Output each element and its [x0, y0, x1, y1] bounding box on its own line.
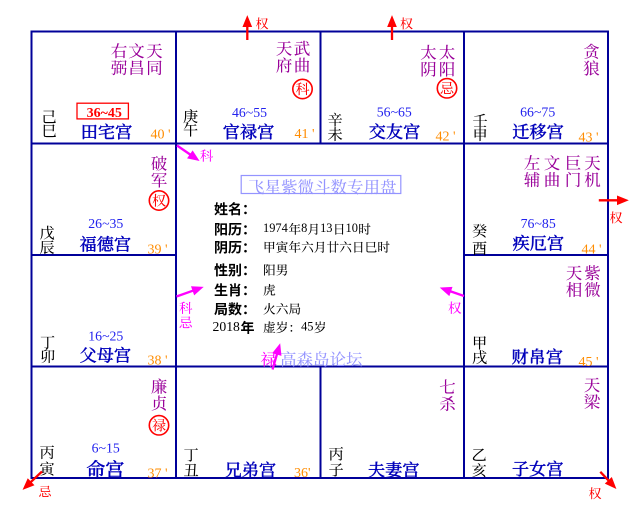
svg-text:43 ': 43 '	[578, 131, 598, 146]
svg-text:40 ': 40 '	[150, 128, 170, 143]
svg-text:56~65: 56~65	[377, 105, 412, 120]
svg-text:37 ': 37 '	[147, 467, 167, 482]
svg-text:10: 10	[346, 221, 358, 235]
svg-text:45: 45	[301, 319, 313, 333]
svg-text:42 ': 42 '	[435, 130, 455, 145]
svg-text:8: 8	[301, 221, 307, 235]
svg-text:2018: 2018	[213, 319, 241, 334]
svg-text:41 ': 41 '	[294, 127, 314, 142]
svg-text:16~25: 16~25	[88, 328, 123, 343]
svg-text:38 ': 38 '	[147, 354, 167, 369]
svg-text:26~35: 26~35	[88, 216, 123, 231]
svg-text:76~85: 76~85	[521, 216, 556, 231]
svg-text:36~45: 36~45	[87, 106, 122, 121]
svg-text:44 ': 44 '	[581, 243, 601, 258]
svg-text:1974: 1974	[263, 221, 288, 235]
svg-text:46~55: 46~55	[232, 105, 267, 120]
svg-text:66~75: 66~75	[520, 105, 555, 120]
svg-text:13: 13	[320, 221, 332, 235]
svg-text:6~15: 6~15	[92, 440, 120, 455]
svg-text:36': 36'	[294, 466, 311, 481]
svg-text:45 ': 45 '	[578, 355, 598, 370]
svg-text:39 ': 39 '	[147, 243, 167, 258]
